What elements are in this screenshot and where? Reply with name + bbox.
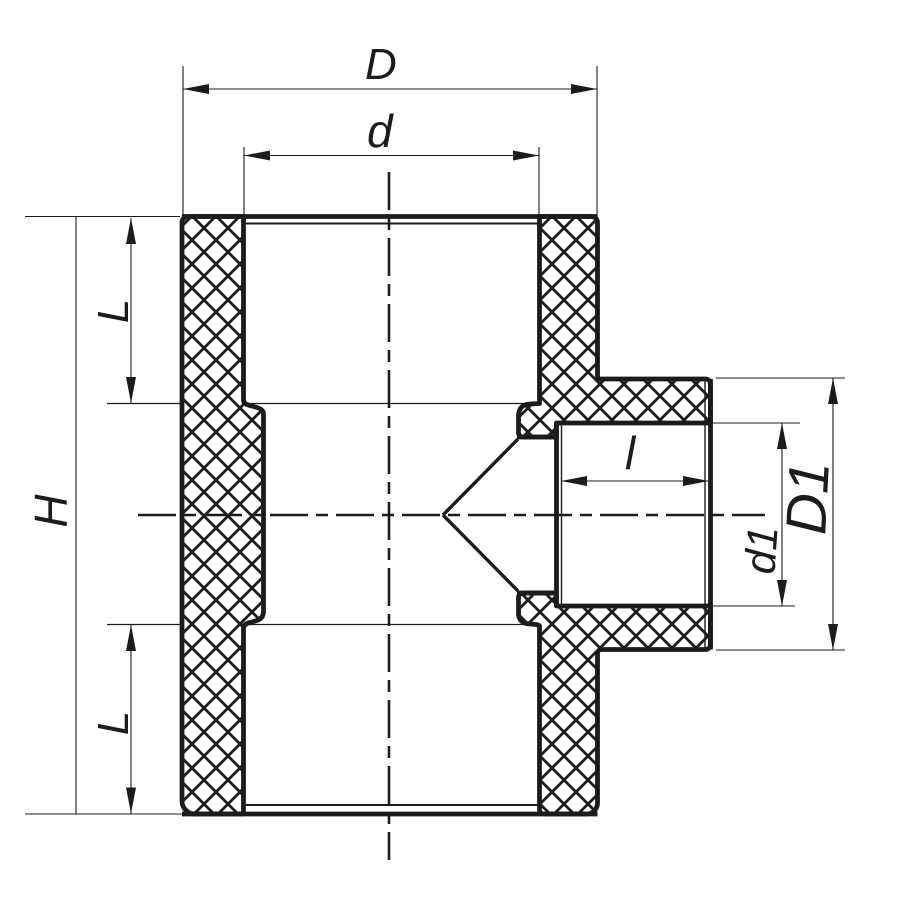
svg-text:D: D — [365, 40, 397, 89]
svg-text:L: L — [89, 299, 138, 323]
svg-text:L: L — [89, 711, 138, 735]
svg-text:D1: D1 — [774, 460, 842, 536]
svg-text:d: d — [367, 105, 394, 157]
svg-text:l: l — [625, 427, 637, 479]
svg-text:H: H — [25, 494, 77, 528]
